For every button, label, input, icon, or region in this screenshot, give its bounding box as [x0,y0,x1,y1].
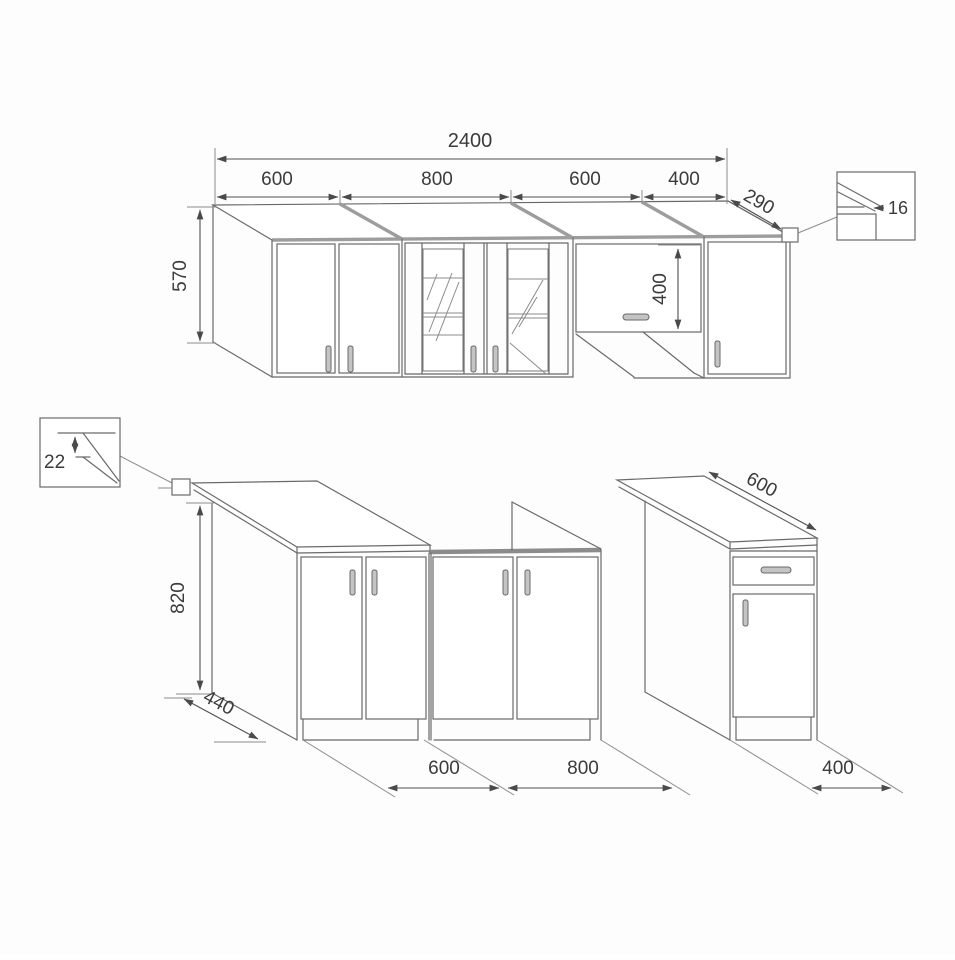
dim-label-22: 22 [44,452,65,473]
cabinet-dimension-drawing: 2400 600 800 600 400 570 290 [0,0,955,955]
dim-label-440: 440 [200,686,238,719]
wall-units-drawing: 2400 600 800 600 400 570 290 [170,130,915,378]
base-cabinet-800-sink [429,550,601,740]
dim-label-wall-600-b: 600 [569,169,601,190]
base-cabinet-400-drawer [617,476,817,740]
sink-side-panel-edge [512,502,601,549]
dim-label-16: 16 [888,198,908,218]
dim-label-wall-400: 400 [668,169,700,190]
door-handle [471,346,476,372]
dim-base-height: 820 [168,503,214,694]
door-handle [348,346,353,372]
dim-wall-unit-widths: 600 800 600 400 [215,169,727,204]
wall-units-top-face [213,201,790,240]
dim-label-820: 820 [168,582,189,614]
drawing-canvas: 2400 600 800 600 400 570 290 [0,0,955,955]
door-handle [743,600,748,626]
dim-base-widths: 600 800 [388,758,672,788]
detail-panel-thickness: 16 [782,172,915,242]
dim-base-400: 400 [812,758,891,788]
worktop-right [617,476,817,542]
door-handle [350,570,355,595]
dim-label-base-600: 600 [428,758,460,779]
dim-label-wall-600-a: 600 [261,169,293,190]
base-units-drawing: 820 440 22 600 [40,418,903,797]
drawer-handle [761,567,791,573]
flap-handle [623,314,649,320]
dim-label-worktop-600: 600 [743,468,781,501]
glass-pane [423,249,463,371]
sink-unit-top-edge [430,550,601,552]
dim-label-2400: 2400 [448,130,493,152]
door-handle [326,346,331,372]
dim-wall-total-width: 2400 [215,130,727,204]
dim-label-570: 570 [170,260,191,292]
door-handle [493,346,498,372]
dim-label-wall-800: 800 [421,169,453,190]
dim-wall-height: 570 [170,207,216,343]
door-handle [503,570,508,595]
wall-cabinet-600-flap [576,244,704,378]
corner-marker [782,228,798,242]
wall-cabinet-400 [704,236,790,378]
door-handle [715,341,720,367]
corner-marker [172,479,190,495]
door-handle [372,570,377,595]
base-cabinet-600 [301,557,426,740]
dim-label-base-400: 400 [822,758,854,779]
dim-label-flap-400: 400 [650,273,671,305]
detail-worktop-thickness: 22 [40,418,190,495]
dim-label-base-800: 800 [567,758,599,779]
glass-pane [508,249,548,371]
door-handle [525,570,530,595]
worktop-left [192,481,430,547]
wall-cabinet-800-glass [402,238,573,377]
